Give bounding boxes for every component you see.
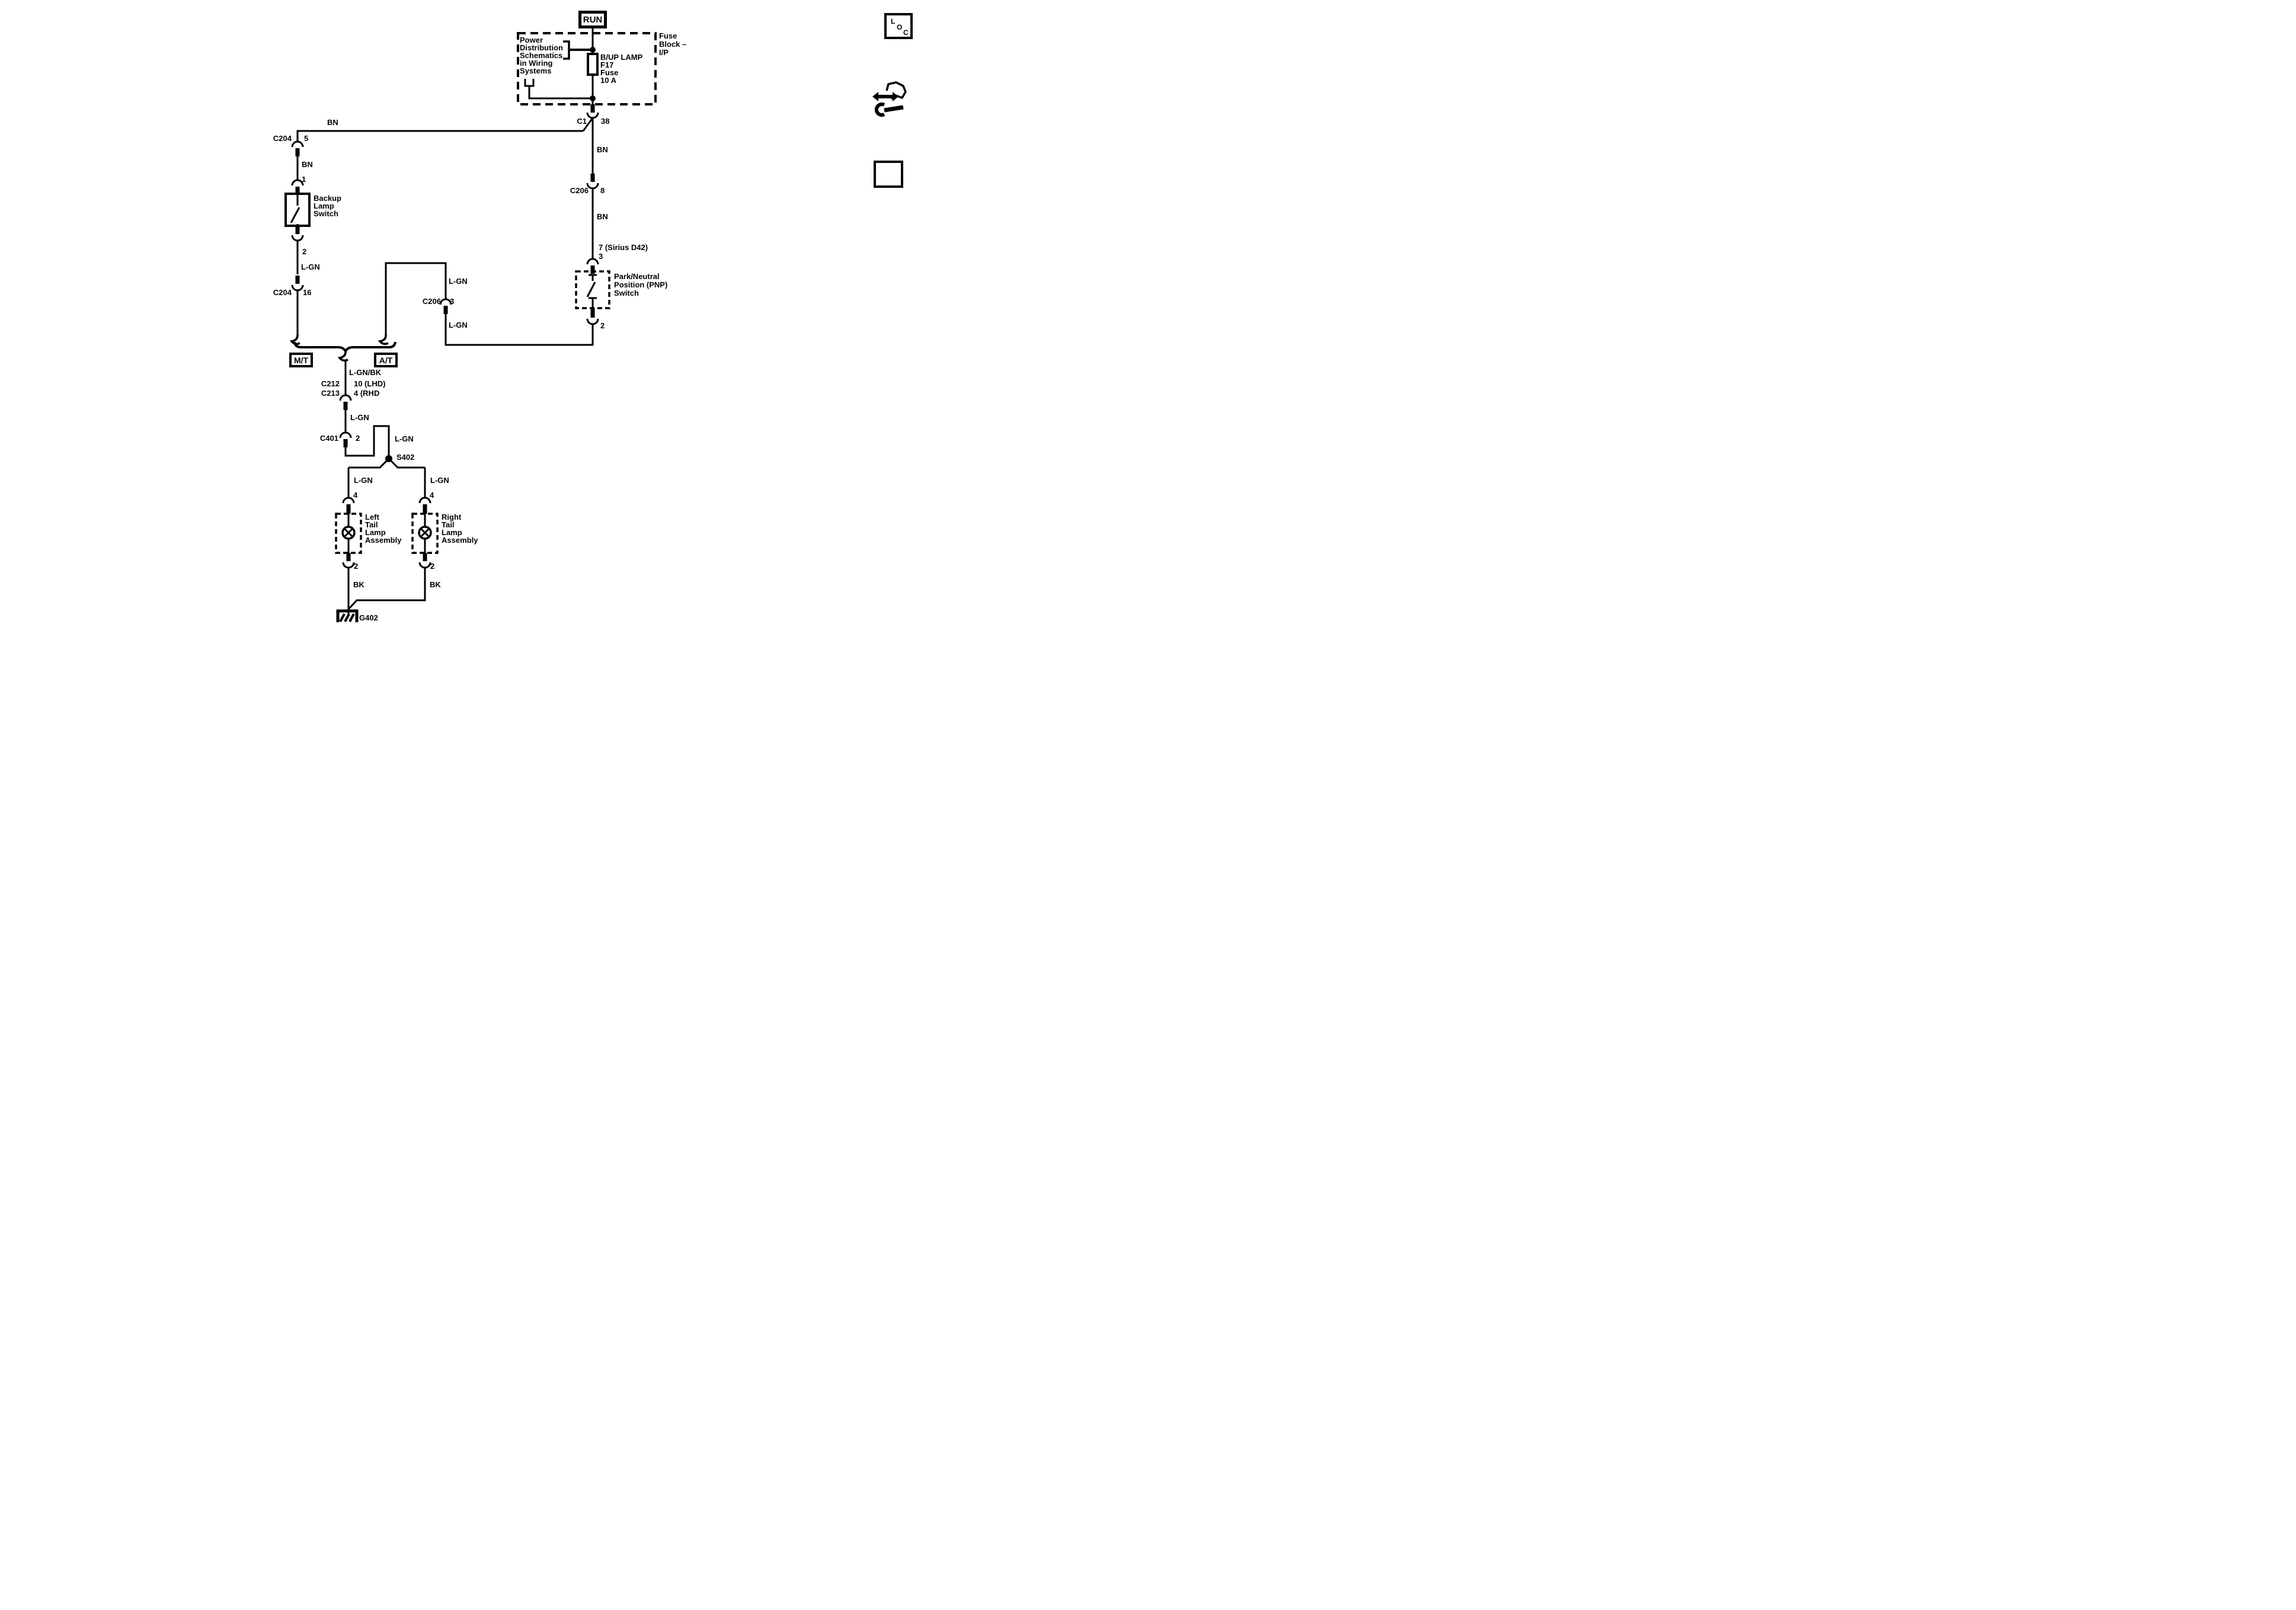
mt-box: M/T — [289, 353, 313, 367]
fuse-block-title-line: I/P — [659, 49, 669, 57]
wire-bn-feed-horizontal — [298, 131, 583, 142]
pnp-pin2-connector-arc — [587, 319, 598, 324]
left-lamp-pin2-arc — [343, 562, 354, 568]
wire-break-hook-center — [340, 351, 348, 360]
switch-pin2-label: 2 — [302, 248, 306, 256]
loc-letter-l: L — [891, 17, 895, 25]
c204-5-pin: 5 — [304, 135, 308, 143]
c212-name: C212 — [321, 380, 340, 388]
backup-switch-blade — [291, 207, 299, 223]
ground-hatches — [340, 614, 354, 622]
ground-label: G402 — [359, 614, 378, 622]
wire-label-lgn: L-GN — [354, 476, 373, 485]
run-label: RUN — [583, 15, 603, 25]
wire-label-lgn: L-GN — [449, 277, 468, 286]
at-box: A/T — [374, 353, 398, 367]
pnp-name-line: Park/Neutral — [614, 273, 660, 281]
c204-5-name: C204 — [273, 135, 292, 143]
wire-label-lgn: L-GN — [350, 414, 369, 422]
wire-label-bk: BK — [430, 581, 441, 589]
c206-8-pin: 8 — [600, 187, 605, 195]
loc-letter-c: C — [903, 28, 909, 37]
right-lamp-pin2-arc — [420, 562, 430, 568]
pnp-pin-label: 3 — [599, 252, 603, 261]
back-button[interactable] — [874, 161, 903, 188]
c212-connector-arc — [340, 395, 351, 401]
wire-lgn-at-lower — [446, 314, 593, 345]
ref-note-line: Systems — [520, 67, 551, 75]
pnp-pin3-connector-arc — [587, 259, 598, 264]
pnp-name-line: Switch — [614, 289, 639, 297]
pnp-pin-alt-label: 7 (Sirius D42) — [599, 244, 648, 252]
right-lamp-pin2-label: 2 — [430, 562, 434, 571]
ref-note-hook — [525, 79, 533, 86]
c204-5-connector-arc — [292, 142, 303, 147]
wire-label-lgn: L-GN — [430, 476, 449, 485]
wire-label-bn: BN — [302, 161, 313, 169]
power-distribution-ref-bracket — [563, 41, 569, 59]
wire-label-bn: BN — [597, 213, 608, 221]
switch-pin1-label: 1 — [302, 175, 306, 184]
wire-label-lgn: L-GN — [395, 435, 414, 443]
c206-3-pin: 3 — [450, 297, 454, 306]
fuse-block-title-line: Block – — [659, 40, 686, 49]
pnp-switch-internals — [587, 275, 597, 308]
c1-name: C1 — [577, 117, 587, 126]
c401-pin: 2 — [356, 434, 360, 443]
wire-label-bn: BN — [597, 146, 608, 154]
c204-16-connector-arc — [292, 285, 303, 290]
right-lamp-pin4-label: 4 — [430, 491, 434, 500]
at-label: A/T — [379, 356, 393, 365]
c401-connector-arc — [340, 433, 351, 438]
left-lamp-pin2-label: 2 — [354, 562, 358, 571]
right-lamp-line: Assembly — [442, 536, 478, 545]
wire-label-bn: BN — [327, 119, 338, 127]
backup-switch-line: Switch — [314, 210, 338, 218]
loc-button[interactable]: L O C — [884, 13, 913, 39]
wrench-handle — [884, 107, 903, 110]
c206-3-name: C206 — [423, 297, 441, 306]
loc-letter-o: O — [897, 23, 902, 31]
right-lamp-pin4-arc — [420, 498, 430, 503]
left-lamp-pin4-arc — [343, 498, 354, 503]
transmission-brace — [295, 342, 395, 351]
wire-label-lgn: L-GN — [301, 263, 320, 271]
wire-lgn-to-s402 — [346, 426, 389, 456]
c212-pin: 10 (LHD) — [354, 380, 385, 388]
c204-16-pin: 16 — [303, 289, 311, 297]
wire-label-bk: BK — [353, 581, 364, 589]
c401-name: C401 — [320, 434, 338, 443]
pnp-name-line: Position (PNP) — [614, 281, 667, 289]
fuse-block-title-line: Fuse — [659, 32, 677, 40]
left-lamp-line: Assembly — [365, 536, 401, 545]
fuse-symbol — [588, 54, 597, 75]
c213-name: C213 — [321, 389, 340, 398]
s402-label: S402 — [396, 453, 414, 462]
c206-8-name: C206 — [570, 187, 589, 195]
c1-connector-arc — [587, 113, 598, 118]
c204-16-name: C204 — [273, 289, 292, 297]
c213-pin: 4 (RHD — [354, 389, 379, 398]
c206-8-connector-arc — [587, 183, 598, 188]
switch-pin2-connector-arc — [292, 235, 303, 241]
left-lamp-pin4-label: 4 — [353, 491, 357, 500]
c1-pin: 38 — [601, 117, 609, 126]
junction-dot-lower — [590, 95, 596, 101]
fuse-rating: 10 A — [600, 76, 616, 85]
mt-label: M/T — [294, 356, 308, 365]
wire-label-lgnbk: L-GN/BK — [349, 369, 381, 377]
wrench-head — [877, 104, 884, 115]
ref-note-tap-wire — [529, 86, 590, 98]
wire-label-lgn: L-GN — [449, 321, 468, 329]
wiring-diagram-page: RUN M/T A/T Power Distribution Schematic… — [0, 0, 918, 644]
wire-break-hook-right — [380, 334, 388, 344]
tools-icon[interactable] — [872, 82, 906, 115]
pnp-pin2-label: 2 — [600, 322, 605, 330]
double-arrow-left-head — [872, 92, 878, 101]
run-power-mode-box: RUN — [578, 11, 607, 28]
